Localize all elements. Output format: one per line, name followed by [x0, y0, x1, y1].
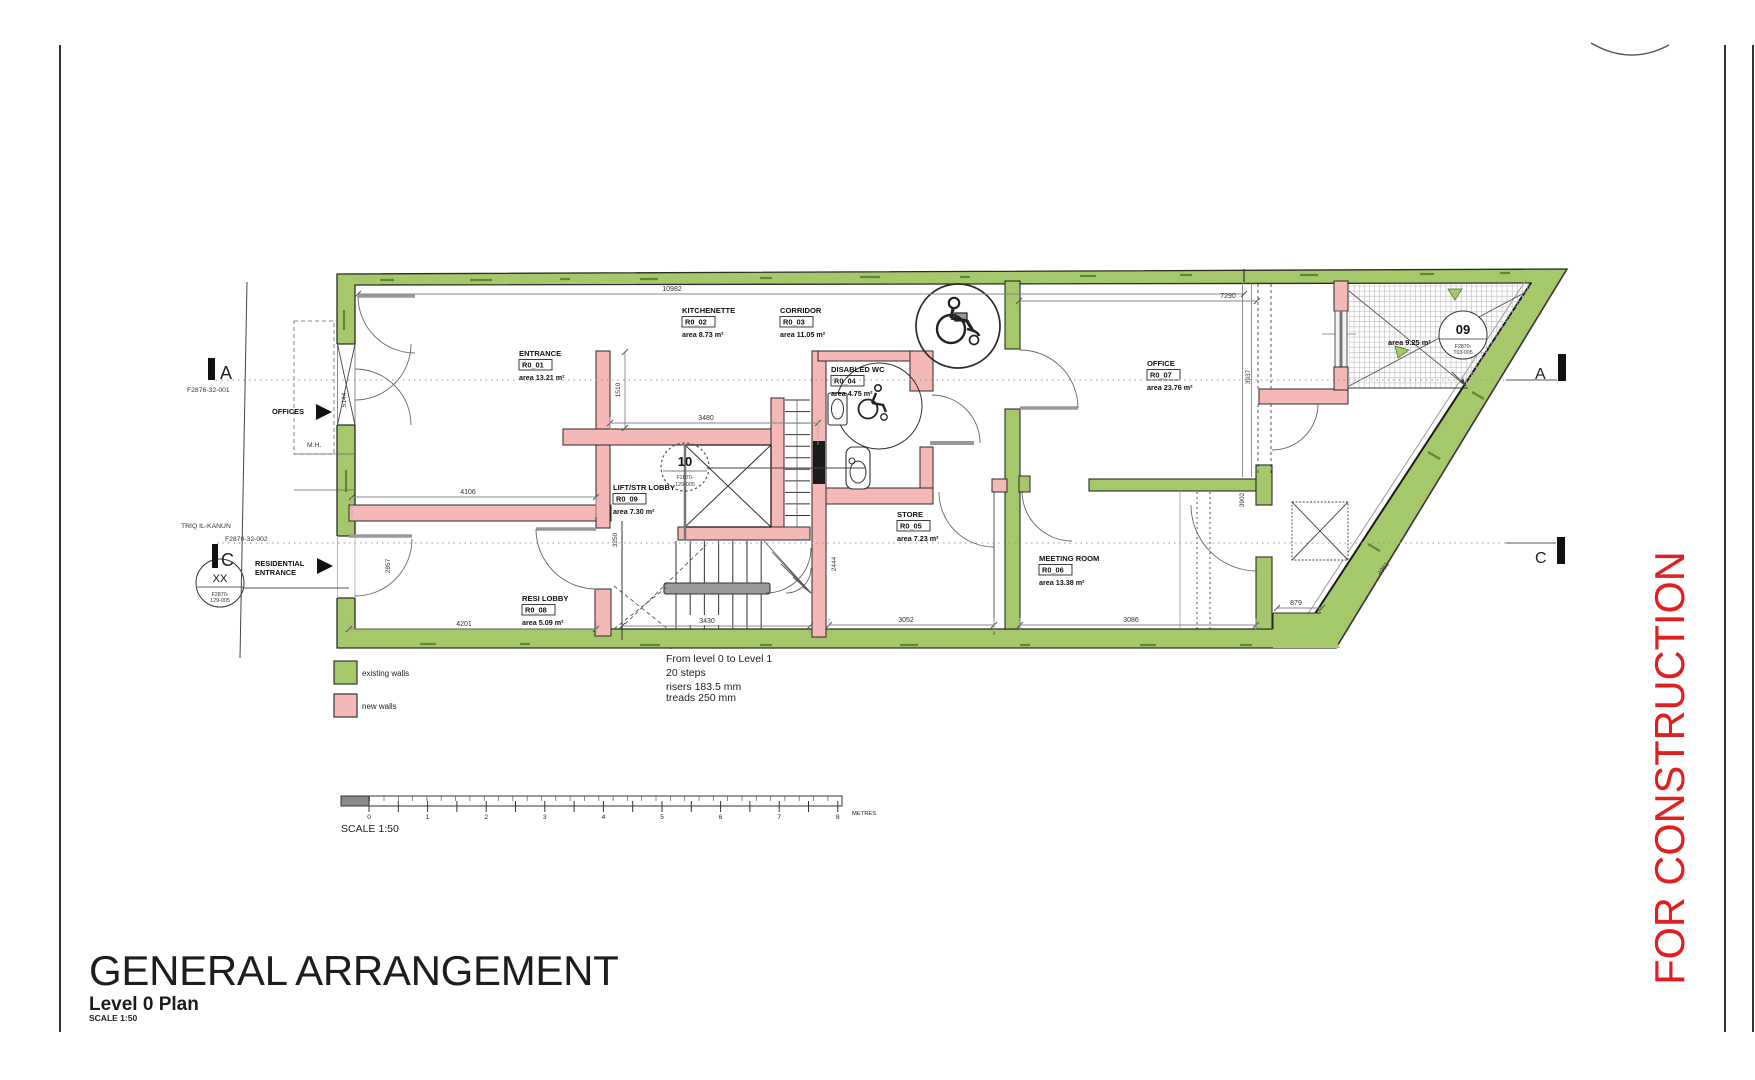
svg-text:4106: 4106 — [460, 489, 476, 496]
svg-text:129-005: 129-005 — [675, 482, 695, 488]
svg-text:OFFICE: OFFICE — [1147, 359, 1175, 368]
svg-text:09: 09 — [1456, 322, 1470, 337]
svg-text:FOR CONSTRUCTION: FOR CONSTRUCTION — [1646, 551, 1693, 984]
svg-text:10: 10 — [678, 454, 692, 469]
svg-text:area 13.21 m²: area 13.21 m² — [519, 373, 565, 382]
svg-text:2: 2 — [484, 814, 488, 821]
svg-text:SCALE 1:50: SCALE 1:50 — [341, 823, 399, 835]
svg-text:R0_06: R0_06 — [1042, 566, 1064, 575]
svg-text:4: 4 — [602, 814, 606, 821]
svg-text:5: 5 — [660, 814, 664, 821]
svg-text:area 7.30 m²: area 7.30 m² — [613, 507, 655, 516]
svg-text:area 4.75 m²: area 4.75 m² — [831, 389, 873, 398]
svg-text:3902: 3902 — [1239, 492, 1246, 507]
svg-text:area 7.23 m²: area 7.23 m² — [897, 534, 939, 543]
svg-text:LIFT/STR LOBBY: LIFT/STR LOBBY — [613, 483, 675, 492]
svg-text:MEETING ROOM: MEETING ROOM — [1039, 554, 1099, 563]
svg-text:C: C — [221, 550, 234, 570]
svg-text:DISABLED WC: DISABLED WC — [831, 365, 885, 374]
svg-text:area 9.25 m²: area 9.25 m² — [1388, 338, 1431, 347]
svg-text:STORE: STORE — [897, 510, 923, 519]
svg-text:2444: 2444 — [831, 556, 838, 571]
svg-text:XX: XX — [213, 573, 228, 585]
svg-text:F2870-32-002: F2870-32-002 — [225, 536, 268, 543]
svg-text:TRIQ IL-KANUN: TRIQ IL-KANUN — [181, 523, 231, 530]
svg-text:5144: 5144 — [341, 392, 348, 407]
svg-text:A: A — [1535, 366, 1546, 383]
svg-text:GENERAL ARRANGEMENT: GENERAL ARRANGEMENT — [89, 947, 619, 994]
svg-text:new walls: new walls — [362, 702, 397, 711]
svg-text:ENTRANCE: ENTRANCE — [519, 349, 561, 358]
svg-text:F2870-: F2870- — [676, 475, 693, 481]
svg-text:F2876-32-001: F2876-32-001 — [187, 387, 230, 394]
svg-text:3937: 3937 — [1245, 369, 1252, 384]
svg-text:R0_04: R0_04 — [834, 377, 857, 386]
svg-text:existing walls: existing walls — [362, 669, 409, 678]
svg-text:treads 250 mm: treads 250 mm — [666, 692, 736, 704]
svg-text:SCALE 1:50: SCALE 1:50 — [89, 1013, 137, 1023]
svg-text:7: 7 — [777, 814, 781, 821]
svg-text:3250: 3250 — [612, 532, 619, 547]
svg-text:M.H.: M.H. — [307, 442, 321, 449]
svg-text:From level 0 to Level 1: From level 0 to Level 1 — [666, 653, 772, 665]
svg-text:3086: 3086 — [1123, 617, 1139, 624]
svg-text:879: 879 — [1290, 600, 1302, 607]
svg-text:8: 8 — [836, 814, 840, 821]
svg-text:6: 6 — [719, 814, 723, 821]
svg-text:R0_08: R0_08 — [525, 606, 547, 615]
svg-text:0: 0 — [367, 814, 371, 821]
svg-text:R0_03: R0_03 — [783, 318, 805, 327]
svg-text:OFFICES: OFFICES — [272, 407, 304, 416]
svg-text:A: A — [220, 363, 232, 383]
svg-text:20 steps: 20 steps — [666, 667, 706, 679]
svg-text:R0_01: R0_01 — [522, 361, 544, 370]
svg-text:T03-005: T03-005 — [1453, 350, 1472, 356]
svg-text:ENTRANCE: ENTRANCE — [255, 568, 296, 577]
svg-text:CORRIDOR: CORRIDOR — [780, 306, 822, 315]
svg-text:area 8.73 m²: area 8.73 m² — [682, 330, 724, 339]
svg-text:1: 1 — [426, 814, 430, 821]
svg-text:METRES: METRES — [852, 811, 876, 817]
svg-text:R0_05: R0_05 — [900, 522, 922, 531]
svg-text:R0_09: R0_09 — [616, 495, 638, 504]
svg-text:KITCHENETTE: KITCHENETTE — [682, 306, 735, 315]
svg-text:3480: 3480 — [698, 415, 714, 422]
svg-text:area 23.76 m²: area 23.76 m² — [1147, 383, 1193, 392]
svg-text:129-005: 129-005 — [210, 598, 230, 604]
svg-text:area 11.05 m²: area 11.05 m² — [780, 330, 826, 339]
svg-text:3052: 3052 — [898, 617, 914, 624]
svg-text:1510: 1510 — [615, 382, 622, 397]
svg-text:4201: 4201 — [456, 621, 472, 628]
svg-text:RESIDENTIAL: RESIDENTIAL — [255, 559, 305, 568]
svg-text:R0_02: R0_02 — [685, 318, 707, 327]
svg-text:2857: 2857 — [385, 558, 392, 573]
svg-text:R0_07: R0_07 — [1150, 371, 1172, 380]
svg-text:Level 0 Plan: Level 0 Plan — [89, 994, 199, 1015]
svg-text:RESI LOBBY: RESI LOBBY — [522, 594, 568, 603]
svg-text:3: 3 — [543, 814, 547, 821]
svg-text:area 5.09 m²: area 5.09 m² — [522, 618, 564, 627]
svg-text:10982: 10982 — [662, 286, 682, 293]
svg-text:C: C — [1535, 550, 1547, 567]
svg-text:7290: 7290 — [1220, 293, 1236, 300]
svg-text:area 13.38 m²: area 13.38 m² — [1039, 578, 1085, 587]
svg-text:3430: 3430 — [699, 618, 715, 625]
